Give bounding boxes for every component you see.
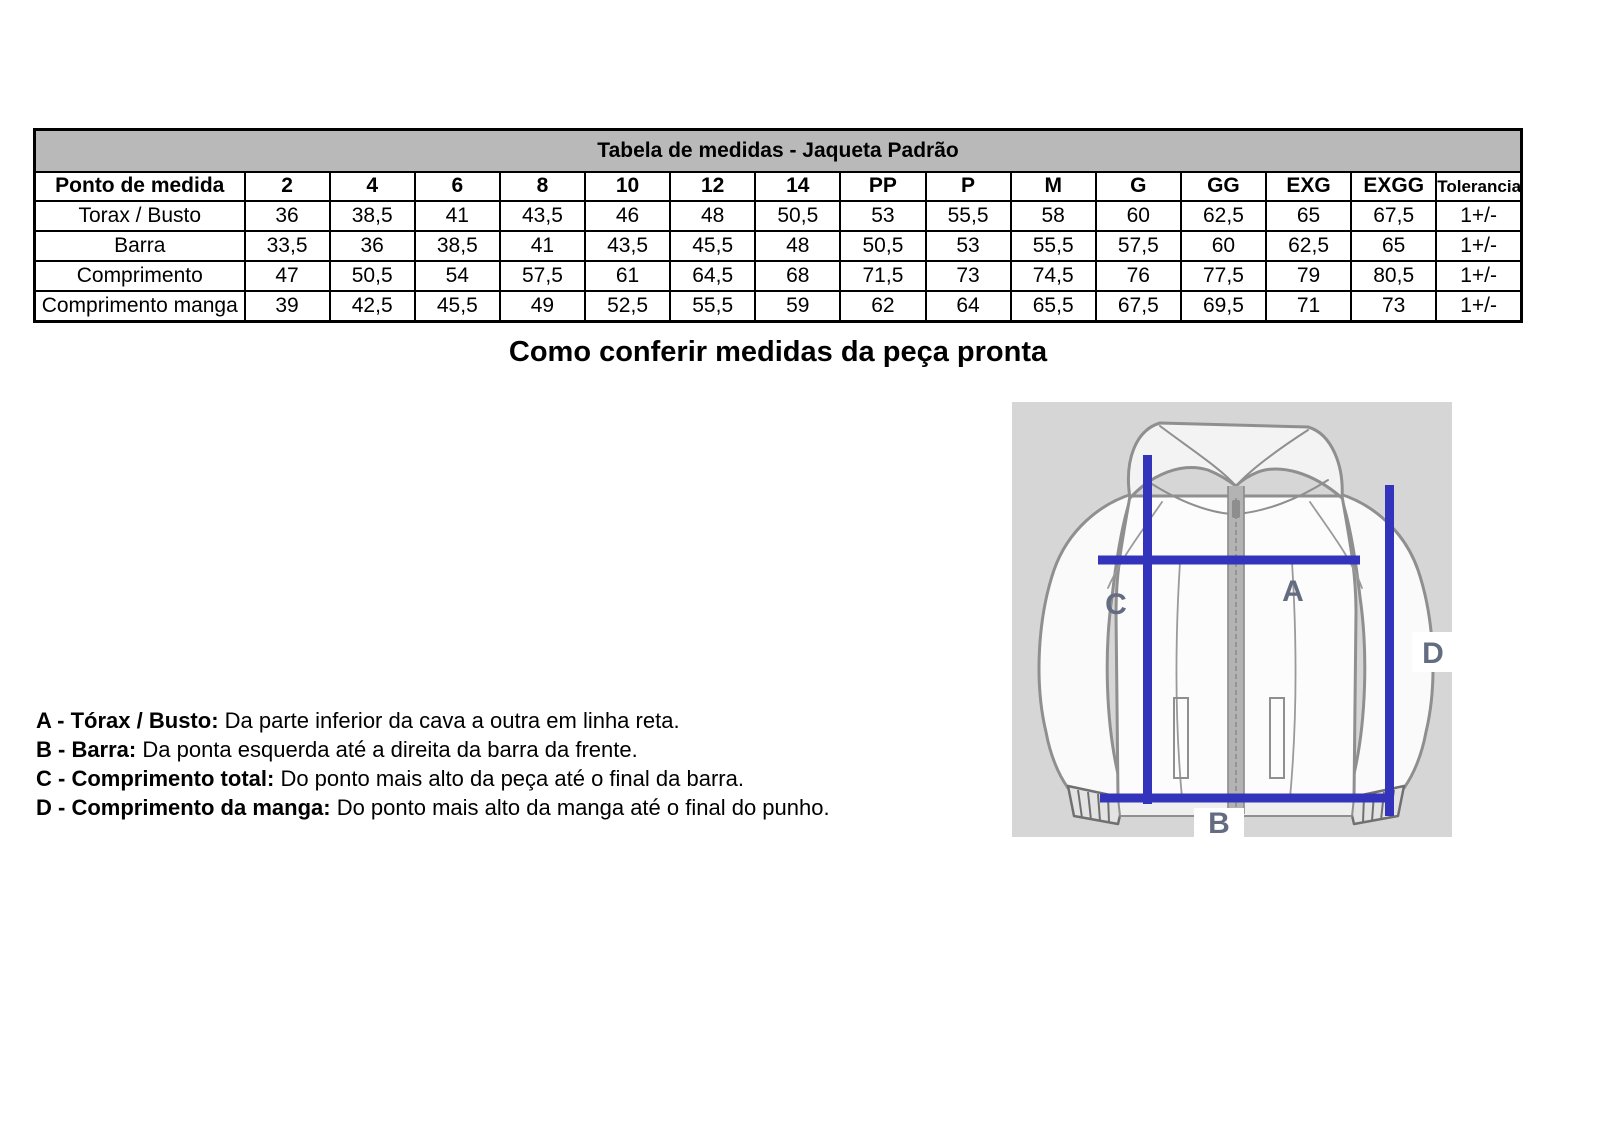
table-cell: 65	[1266, 201, 1351, 231]
table-cell: 38,5	[330, 201, 415, 231]
table-cell: 38,5	[415, 231, 500, 261]
table-cell: 60	[1181, 231, 1266, 261]
table-cell: 77,5	[1181, 261, 1266, 291]
table-cell: 76	[1096, 261, 1181, 291]
table-cell: 52,5	[585, 291, 670, 322]
column-header: 10	[585, 172, 670, 201]
table-cell: 53	[840, 201, 925, 231]
table-cell: 43,5	[500, 201, 585, 231]
table-cell: 54	[415, 261, 500, 291]
table-cell: 36	[245, 201, 330, 231]
table-cell: 68	[755, 261, 840, 291]
table-cell: 71,5	[840, 261, 925, 291]
row-label: Barra	[35, 231, 245, 261]
column-header: M	[1011, 172, 1096, 201]
table-cell: 62,5	[1181, 201, 1266, 231]
table-cell: 48	[755, 231, 840, 261]
table-cell: 65	[1351, 231, 1436, 261]
table-cell: 61	[585, 261, 670, 291]
table-cell: 36	[330, 231, 415, 261]
table-cell: 74,5	[1011, 261, 1096, 291]
table-cell: 41	[415, 201, 500, 231]
column-header: PP	[840, 172, 925, 201]
table-cell: 71	[1266, 291, 1351, 322]
diagram-label-c: C	[1105, 588, 1127, 621]
table-cell: 59	[755, 291, 840, 322]
table-cell: 50,5	[330, 261, 415, 291]
table-cell: 79	[1266, 261, 1351, 291]
table-cell: 64,5	[670, 261, 755, 291]
table-cell: 1+/-	[1436, 201, 1521, 231]
table-cell: 62,5	[1266, 231, 1351, 261]
row-label: Comprimento manga	[35, 291, 245, 322]
table-cell: 57,5	[1096, 231, 1181, 261]
instruction-desc: Da parte inferior da cava a outra em lin…	[219, 708, 680, 733]
table-cell: 49	[500, 291, 585, 322]
row-label: Comprimento	[35, 261, 245, 291]
zipper-pull	[1232, 500, 1240, 518]
table-cell: 60	[1096, 201, 1181, 231]
jacket-measurement-diagram: C A B D	[1012, 402, 1452, 837]
table-cell: 57,5	[500, 261, 585, 291]
table-cell: 73	[926, 261, 1011, 291]
table-cell: 46	[585, 201, 670, 231]
table-row: Comprimento 47 50,5 54 57,5 61 64,5 68 7…	[35, 261, 1522, 291]
table-cell: 55,5	[926, 201, 1011, 231]
instruction-term: D - Comprimento da manga:	[36, 795, 331, 820]
column-header: 12	[670, 172, 755, 201]
table-cell: 50,5	[840, 231, 925, 261]
table-cell: 69,5	[1181, 291, 1266, 322]
table-cell: 55,5	[670, 291, 755, 322]
table-cell: 43,5	[585, 231, 670, 261]
instruction-line-c: C - Comprimento total: Do ponto mais alt…	[36, 764, 896, 793]
table-cell: 33,5	[245, 231, 330, 261]
table-cell: 65,5	[1011, 291, 1096, 322]
table-cell: 73	[1351, 291, 1436, 322]
table-cell: 53	[926, 231, 1011, 261]
column-header: 6	[415, 172, 500, 201]
instruction-term: C - Comprimento total:	[36, 766, 274, 791]
diagram-label-d: D	[1422, 637, 1444, 670]
table-cell: 62	[840, 291, 925, 322]
table-title-row: Tabela de medidas - Jaqueta Padrão	[35, 130, 1522, 173]
instruction-line-a: A - Tórax / Busto: Da parte inferior da …	[36, 706, 896, 735]
column-header: EXGG	[1351, 172, 1436, 201]
row-label: Torax / Busto	[35, 201, 245, 231]
table-cell: 45,5	[670, 231, 755, 261]
instruction-line-d: D - Comprimento da manga: Do ponto mais …	[36, 793, 896, 822]
table-header-row: Ponto de medida 2 4 6 8 10 12 14 PP P M …	[35, 172, 1522, 201]
diagram-label-a: A	[1282, 575, 1304, 608]
table-cell: 64	[926, 291, 1011, 322]
column-header-tolerance: Tolerancia	[1436, 172, 1521, 201]
table-cell: 45,5	[415, 291, 500, 322]
table-cell: 1+/-	[1436, 291, 1521, 322]
column-header: 2	[245, 172, 330, 201]
instruction-term: A - Tórax / Busto:	[36, 708, 219, 733]
instruction-line-b: B - Barra: Da ponta esquerda até a direi…	[36, 735, 896, 764]
column-header: P	[926, 172, 1011, 201]
instruction-desc: Da ponta esquerda até a direita da barra…	[136, 737, 637, 762]
column-header: Ponto de medida	[35, 172, 245, 201]
column-header: G	[1096, 172, 1181, 201]
table-cell: 67,5	[1351, 201, 1436, 231]
table-row: Comprimento manga 39 42,5 45,5 49 52,5 5…	[35, 291, 1522, 322]
table-cell: 39	[245, 291, 330, 322]
instruction-desc: Do ponto mais alto da peça até o final d…	[274, 766, 744, 791]
column-header: EXG	[1266, 172, 1351, 201]
table-row: Torax / Busto 36 38,5 41 43,5 46 48 50,5…	[35, 201, 1522, 231]
table-cell: 1+/-	[1436, 231, 1521, 261]
table-cell: 50,5	[755, 201, 840, 231]
instruction-term: B - Barra:	[36, 737, 136, 762]
column-header: 14	[755, 172, 840, 201]
measure-instructions: A - Tórax / Busto: Da parte inferior da …	[36, 706, 896, 822]
table-cell: 42,5	[330, 291, 415, 322]
table-cell: 55,5	[1011, 231, 1096, 261]
instruction-desc: Do ponto mais alto da manga até o final …	[331, 795, 830, 820]
table-cell: 41	[500, 231, 585, 261]
size-table: Tabela de medidas - Jaqueta Padrão Ponto…	[33, 128, 1523, 323]
table-cell: 1+/-	[1436, 261, 1521, 291]
table-row: Barra 33,5 36 38,5 41 43,5 45,5 48 50,5 …	[35, 231, 1522, 261]
column-header: 8	[500, 172, 585, 201]
table-cell: 67,5	[1096, 291, 1181, 322]
table-cell: 58	[1011, 201, 1096, 231]
section-heading: Como conferir medidas da peça pronta	[33, 336, 1523, 369]
table-cell: 47	[245, 261, 330, 291]
diagram-label-b: B	[1208, 807, 1230, 837]
table-title: Tabela de medidas - Jaqueta Padrão	[35, 130, 1522, 173]
table-cell: 48	[670, 201, 755, 231]
column-header: GG	[1181, 172, 1266, 201]
column-header: 4	[330, 172, 415, 201]
table-cell: 80,5	[1351, 261, 1436, 291]
